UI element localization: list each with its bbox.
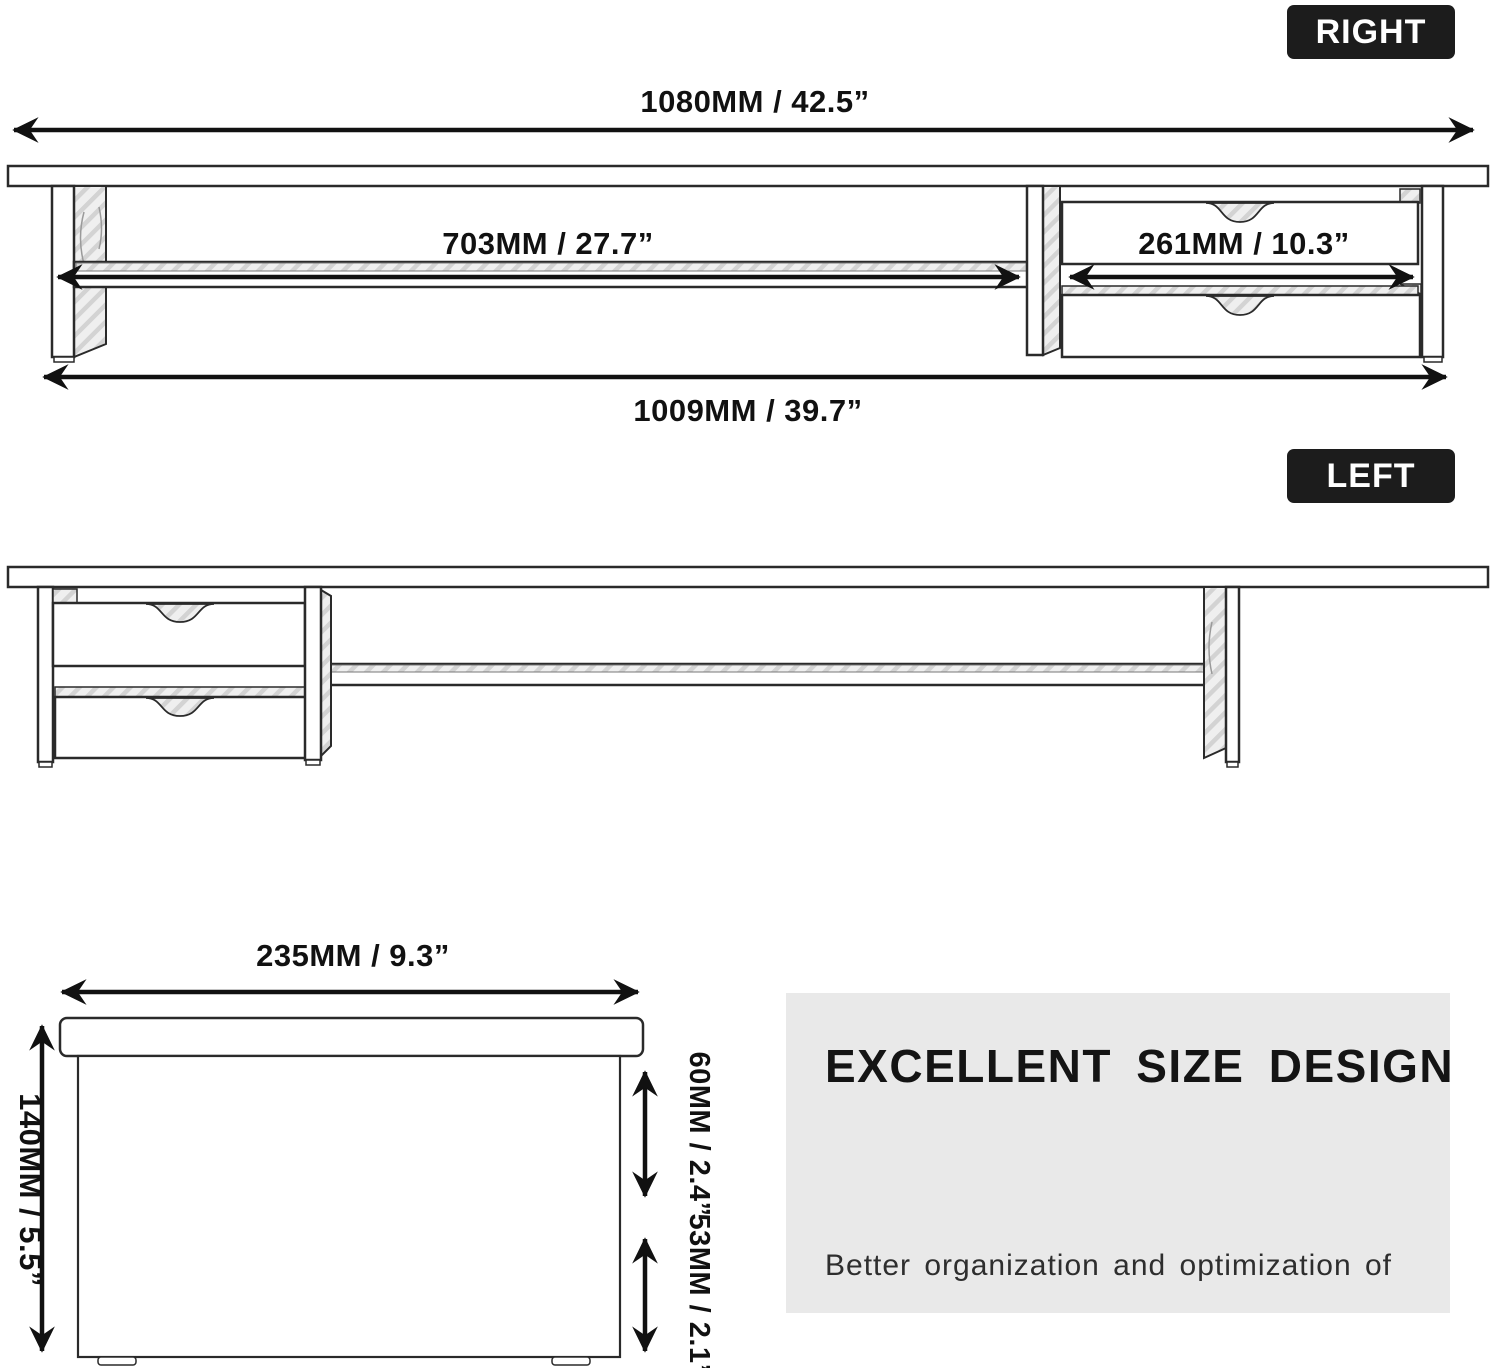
top-board [8,166,1488,186]
dim-label-shelf-width: 703MM / 27.7” [442,226,654,261]
panel-line-1: Better organization and optimization of [825,1237,1430,1295]
drawer-top-rail [53,589,77,603]
drawer-right-leg [305,587,321,760]
middle-shelf-edge [76,263,1028,271]
drawer-right-leg-side [321,590,331,756]
panel-body: Better organization and optimization of … [825,1121,1430,1368]
dim-label-lower-gap: 53MM / 2.1” [683,1213,715,1368]
left-config-drawing [8,567,1488,767]
dim-label-upper-gap: 60MM / 2.4” [683,1051,715,1216]
side-body [78,1056,620,1357]
right-leg [1226,587,1239,762]
lower-drawer-rail [1062,286,1418,295]
middle-shelf-edge [323,665,1204,672]
left-leg-foot [54,357,74,362]
drawer-right-leg-foot [306,760,320,765]
left-leg [52,186,74,357]
side-top-board [60,1018,643,1056]
left-badge-label: LEFT [1327,457,1416,496]
dim-label-depth: 235MM / 9.3” [256,938,450,973]
dim-label-drawer-width: 261MM / 10.3” [1138,226,1350,261]
drawer-left-leg-side [1043,186,1060,355]
right-badge-label: RIGHT [1316,13,1427,52]
panel-heading: EXCELLENT SIZE DESIGN [825,1039,1430,1093]
monitor-stand-dimension-sheet: 1080MM / 42.5” 703MM / 27.7” 261MM / 10.… [0,0,1500,1368]
drawer-left-leg [1027,186,1043,355]
left-orientation-badge: LEFT [1287,449,1455,503]
size-design-panel: EXCELLENT SIZE DESIGN Better organizatio… [786,993,1450,1313]
top-board [8,567,1488,587]
side-foot-right [552,1357,590,1365]
dim-label-top-width: 1080MM / 42.5” [640,84,869,119]
side-foot-left [98,1357,136,1365]
drawer-right-leg [1422,186,1443,357]
left-leg-foot [39,762,52,767]
lower-drawer-rail [55,687,305,697]
right-orientation-badge: RIGHT [1287,5,1455,59]
left-leg [38,587,53,762]
right-leg-side [1204,587,1226,758]
side-view-drawing [42,992,645,1365]
right-leg-foot [1227,762,1238,767]
drawer-right-leg-foot [1424,357,1442,362]
dim-label-height: 140MM / 5.5” [13,1093,48,1287]
dim-label-base-width: 1009MM / 39.7” [633,393,862,428]
